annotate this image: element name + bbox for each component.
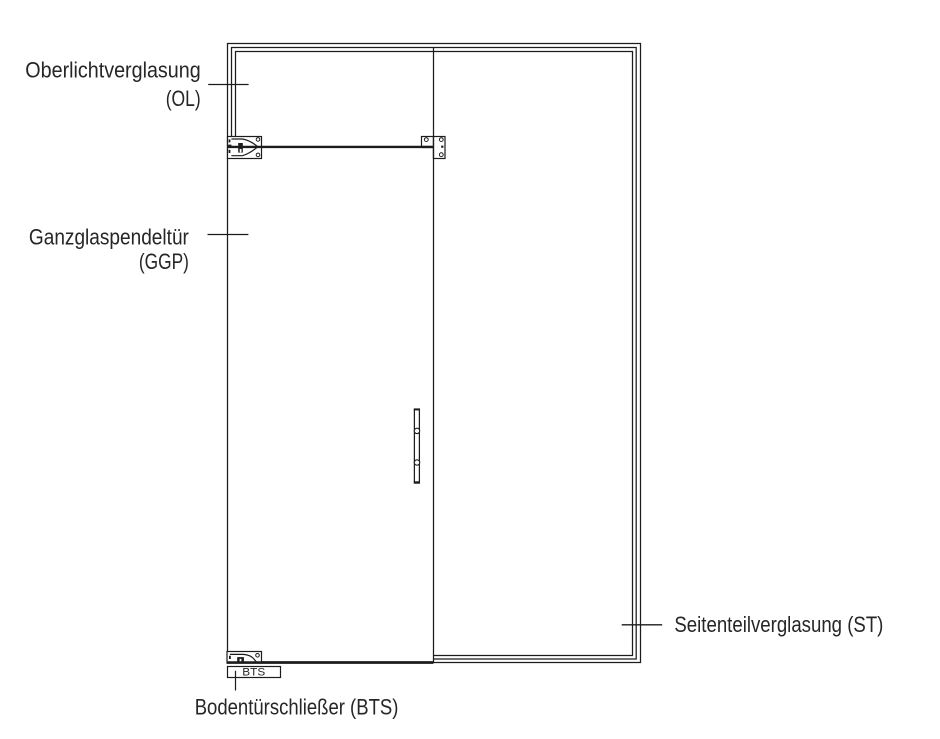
svg-text:Ganzglaspendeltür: Ganzglaspendeltür xyxy=(29,224,189,249)
svg-text:(OL): (OL) xyxy=(166,86,201,111)
svg-text:Oberlichtverglasung: Oberlichtverglasung xyxy=(25,57,200,82)
svg-text:Seitenteilverglasung (ST): Seitenteilverglasung (ST) xyxy=(674,612,883,637)
svg-text:Bodentürschließer (BTS): Bodentürschließer (BTS) xyxy=(195,695,399,720)
svg-text:(GGP): (GGP) xyxy=(139,249,189,274)
svg-text:BTS: BTS xyxy=(242,666,265,678)
